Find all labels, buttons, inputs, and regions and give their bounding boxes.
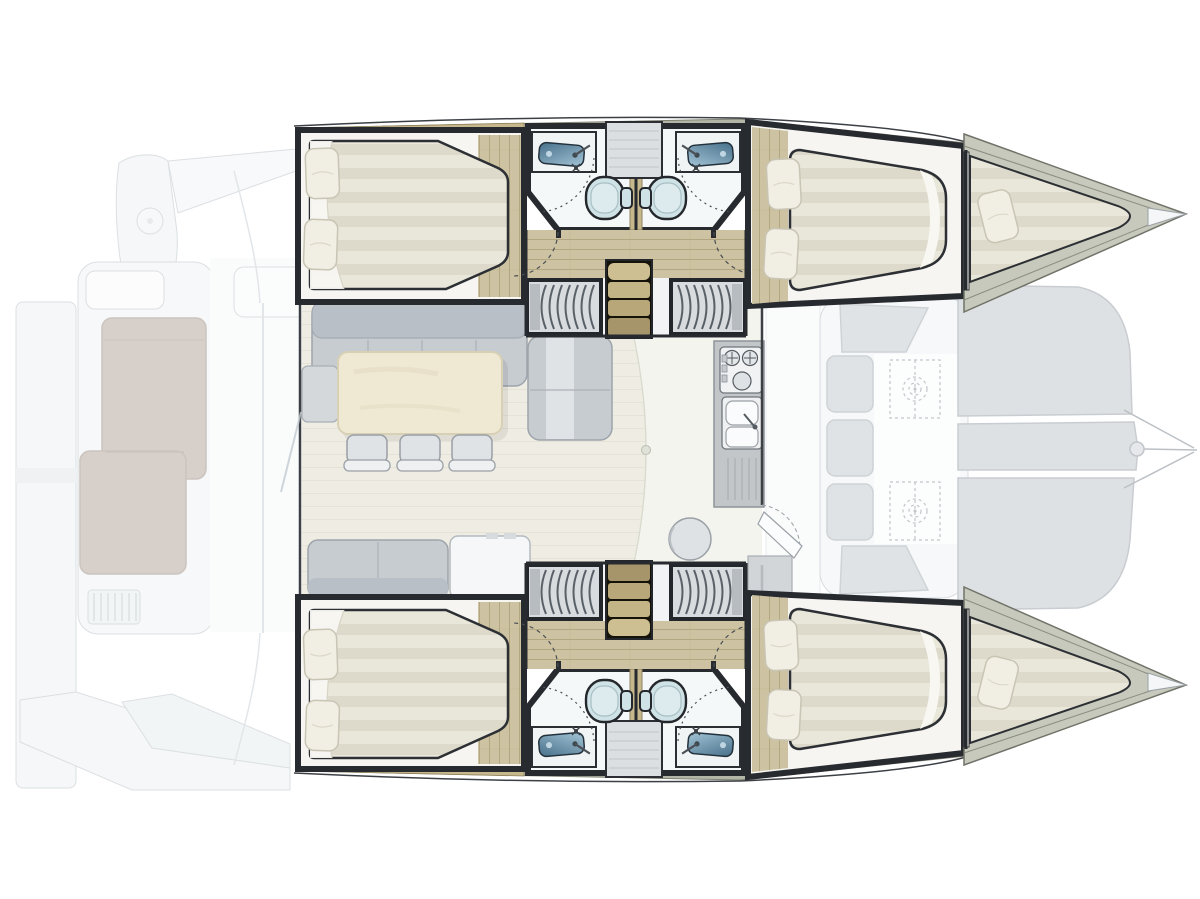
floor-plan-svg	[0, 0, 1200, 899]
stove-knobs	[722, 355, 727, 382]
side-table	[302, 366, 338, 422]
forward-cabin	[748, 122, 964, 306]
cockpit-seat-left	[86, 271, 164, 309]
storage-cabinet	[450, 533, 530, 598]
stove-2-burner	[720, 347, 762, 393]
round-deck-fitting-center	[147, 218, 153, 224]
door-knob	[642, 446, 651, 455]
pillow	[303, 219, 338, 270]
pillow	[766, 158, 802, 210]
dining-table	[338, 352, 502, 434]
pillow	[305, 148, 340, 199]
aft-cabin-bed	[310, 141, 508, 289]
trampoline-panel-lower	[958, 478, 1134, 610]
companionway	[512, 228, 754, 338]
trampoline-panel-middle	[958, 422, 1138, 470]
vanity-cabinet	[606, 122, 662, 178]
bridle-pin	[1130, 442, 1144, 456]
bench-seat	[308, 540, 448, 598]
trampoline-panel-upper	[958, 285, 1132, 416]
catamaran-floor-plan	[0, 0, 1200, 899]
dining-chair-3	[449, 435, 495, 471]
dining-chair-1	[344, 435, 390, 471]
trampolines	[958, 285, 1138, 610]
round-stool	[669, 518, 711, 560]
forward-cockpit-floor	[874, 354, 960, 544]
forward-cabin-bed	[790, 150, 946, 290]
galley	[714, 341, 764, 507]
deck-grille	[88, 590, 140, 624]
heads-module	[528, 122, 744, 230]
aft-cabin	[298, 130, 524, 302]
washbasin-aft	[532, 132, 596, 172]
hanging-locker-forward	[671, 280, 745, 334]
washbasin-forward	[676, 132, 740, 172]
companionway-stairs	[606, 260, 652, 338]
pillow	[763, 228, 799, 280]
dining-chair-2	[397, 435, 443, 471]
double-sink	[722, 397, 762, 449]
salon	[281, 302, 802, 598]
hanging-locker-aft	[527, 280, 601, 334]
foredeck-cabinet	[748, 556, 792, 596]
swim-platform-seam	[16, 468, 76, 483]
throw-blanket	[546, 337, 574, 439]
